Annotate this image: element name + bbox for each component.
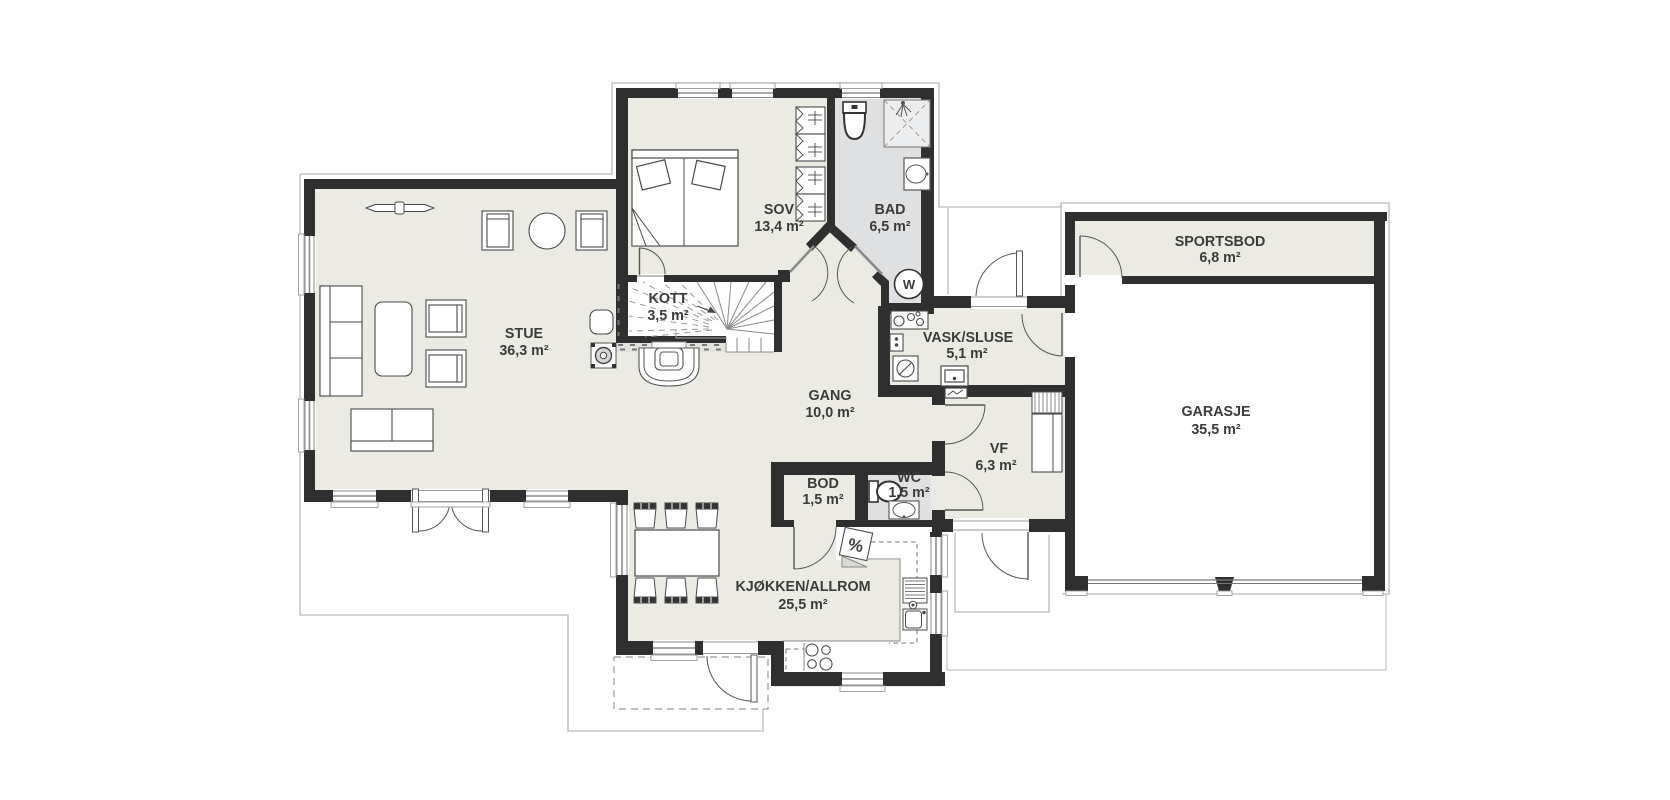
svg-text:10,0 m²: 10,0 m² bbox=[805, 405, 855, 421]
svg-text:36,3 m²: 36,3 m² bbox=[499, 343, 549, 359]
svg-text:W: W bbox=[903, 277, 916, 292]
svg-text:13,4 m²: 13,4 m² bbox=[754, 219, 804, 235]
svg-text:35,5 m²: 35,5 m² bbox=[1191, 422, 1241, 438]
svg-text:3,5 m²: 3,5 m² bbox=[647, 308, 689, 324]
svg-text:5,1 m²: 5,1 m² bbox=[946, 346, 988, 362]
svg-text:VASK/SLUSE: VASK/SLUSE bbox=[923, 330, 1013, 346]
svg-text:KOTT: KOTT bbox=[649, 291, 688, 307]
svg-text:SPORTSBOD: SPORTSBOD bbox=[1175, 234, 1266, 250]
svg-text:GARASJE: GARASJE bbox=[1181, 404, 1250, 420]
svg-text:6,3 m²: 6,3 m² bbox=[975, 458, 1017, 474]
svg-text:BOD: BOD bbox=[807, 476, 839, 492]
svg-text:1,5 m²: 1,5 m² bbox=[802, 492, 844, 508]
svg-text:GANG: GANG bbox=[809, 388, 852, 404]
svg-text:VF: VF bbox=[990, 441, 1009, 457]
svg-text:WC: WC bbox=[897, 470, 921, 486]
svg-text:STUE: STUE bbox=[505, 326, 543, 342]
svg-text:1,5 m²: 1,5 m² bbox=[888, 485, 930, 501]
svg-text:BAD: BAD bbox=[875, 202, 906, 218]
svg-text:6,8 m²: 6,8 m² bbox=[1199, 250, 1241, 266]
svg-text:6,5 m²: 6,5 m² bbox=[869, 219, 911, 235]
svg-text:25,5 m²: 25,5 m² bbox=[778, 597, 828, 613]
svg-text:SOV: SOV bbox=[764, 202, 795, 218]
svg-text:KJØKKEN/ALLROM: KJØKKEN/ALLROM bbox=[735, 579, 870, 595]
